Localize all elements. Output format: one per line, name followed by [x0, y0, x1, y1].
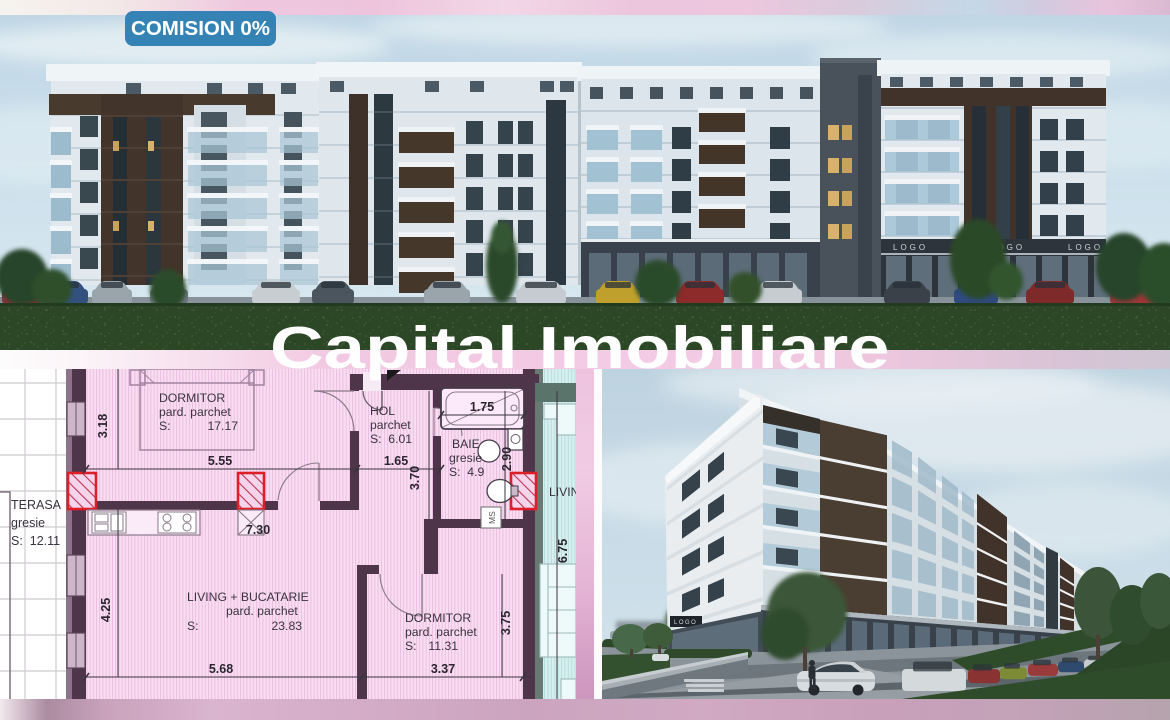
- svg-text:3.18: 3.18: [96, 414, 110, 438]
- svg-text:HOL: HOL: [370, 404, 395, 418]
- svg-text:3.70: 3.70: [408, 466, 422, 490]
- svg-text:DORMITOR: DORMITOR: [159, 391, 225, 405]
- svg-text:gresie: gresie: [11, 516, 45, 530]
- svg-text:23.83: 23.83: [272, 619, 303, 633]
- svg-text:LOGO: LOGO: [1068, 243, 1103, 252]
- svg-text:gresie: gresie: [449, 451, 482, 465]
- svg-text:1.65: 1.65: [384, 454, 408, 468]
- svg-text:pard. parchet: pard. parchet: [159, 405, 231, 419]
- svg-text:5.55: 5.55: [208, 454, 232, 468]
- svg-text:pard. parchet: pard. parchet: [226, 604, 298, 618]
- svg-text:BAIE: BAIE: [452, 437, 480, 451]
- svg-text:17.17: 17.17: [208, 419, 239, 433]
- svg-text:MS: MS: [487, 511, 497, 524]
- svg-text:LOGO: LOGO: [674, 620, 697, 626]
- svg-text:1.75: 1.75: [470, 400, 494, 414]
- svg-text:11.31: 11.31: [428, 639, 458, 653]
- svg-text:S: 4.9: S: 4.9: [449, 465, 484, 479]
- svg-text:7.30: 7.30: [246, 523, 270, 537]
- svg-text:3.75: 3.75: [499, 611, 513, 635]
- svg-text:6.75: 6.75: [556, 539, 570, 563]
- svg-text:S: 6.01: S: 6.01: [370, 432, 412, 446]
- svg-text:parchet: parchet: [370, 418, 411, 432]
- svg-text:LIVING + BUCATARIE: LIVING + BUCATARIE: [187, 590, 309, 604]
- svg-text:3.37: 3.37: [431, 662, 455, 676]
- svg-text:LIVIN: LIVIN: [549, 485, 576, 499]
- svg-text:2.90: 2.90: [500, 447, 514, 471]
- svg-text:5.68: 5.68: [209, 662, 233, 676]
- svg-text:S: 12.11: S: 12.11: [11, 534, 60, 548]
- svg-text:pard. parchet: pard. parchet: [405, 625, 477, 639]
- svg-text:S:: S:: [159, 419, 171, 433]
- svg-text:S:: S:: [405, 639, 417, 653]
- svg-text:S:: S:: [187, 619, 199, 633]
- svg-text:LOGO: LOGO: [893, 243, 928, 252]
- svg-text:TERASA: TERASA: [11, 498, 62, 512]
- svg-text:4.25: 4.25: [99, 598, 113, 622]
- svg-text:DORMITOR: DORMITOR: [405, 611, 471, 625]
